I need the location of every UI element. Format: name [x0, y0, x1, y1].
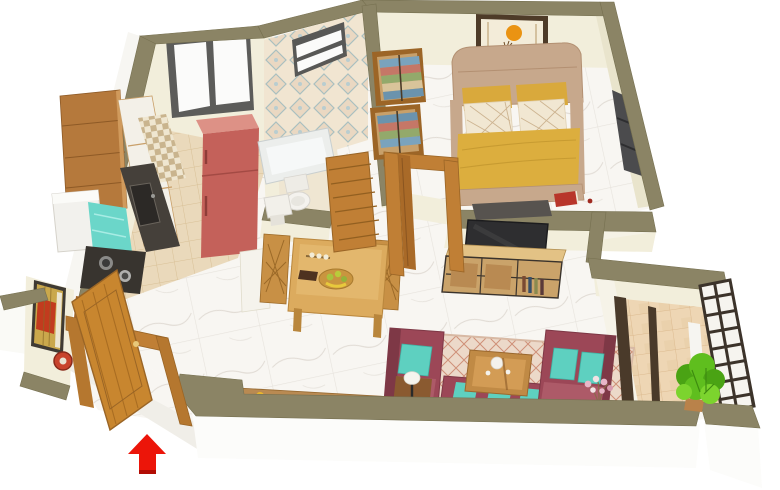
lamp-shade [404, 372, 420, 385]
floor-dot [588, 199, 593, 204]
console-drawer [484, 264, 512, 290]
wall-clock-icon [54, 352, 72, 370]
balcony-bottom-wall-top [700, 402, 760, 428]
teacup [506, 370, 511, 375]
art-sun [506, 25, 522, 41]
teapot [491, 357, 503, 369]
window-pane-right [213, 38, 250, 105]
faucet [151, 194, 155, 198]
sofa-cushion-1 [550, 348, 578, 380]
sofa-cushion-2 [578, 352, 604, 384]
floor-plan-render [0, 0, 780, 490]
bedroom [450, 43, 592, 220]
wash-basin [264, 194, 292, 218]
plant-pot [684, 398, 704, 412]
balcony-outer-face [704, 422, 762, 488]
teacup [486, 371, 491, 376]
kitchen-window [166, 33, 254, 118]
refrigerator [201, 128, 259, 258]
door-knob [133, 341, 139, 347]
armchair-cushion [398, 344, 432, 376]
entry-arrow-icon [128, 434, 166, 474]
table-leg [373, 314, 382, 338]
table-leg [293, 308, 302, 332]
floor-plan-svg [0, 0, 780, 490]
chair-left [260, 234, 290, 304]
window-pane-left [174, 42, 210, 112]
